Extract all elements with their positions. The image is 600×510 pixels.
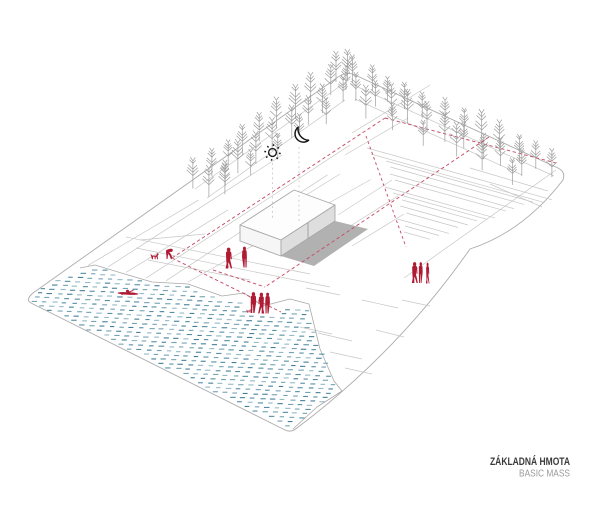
svg-text:BASIC MASS: BASIC MASS <box>519 469 570 480</box>
svg-text:ZÁKLADNÁ HMOTA: ZÁKLADNÁ HMOTA <box>490 455 570 468</box>
